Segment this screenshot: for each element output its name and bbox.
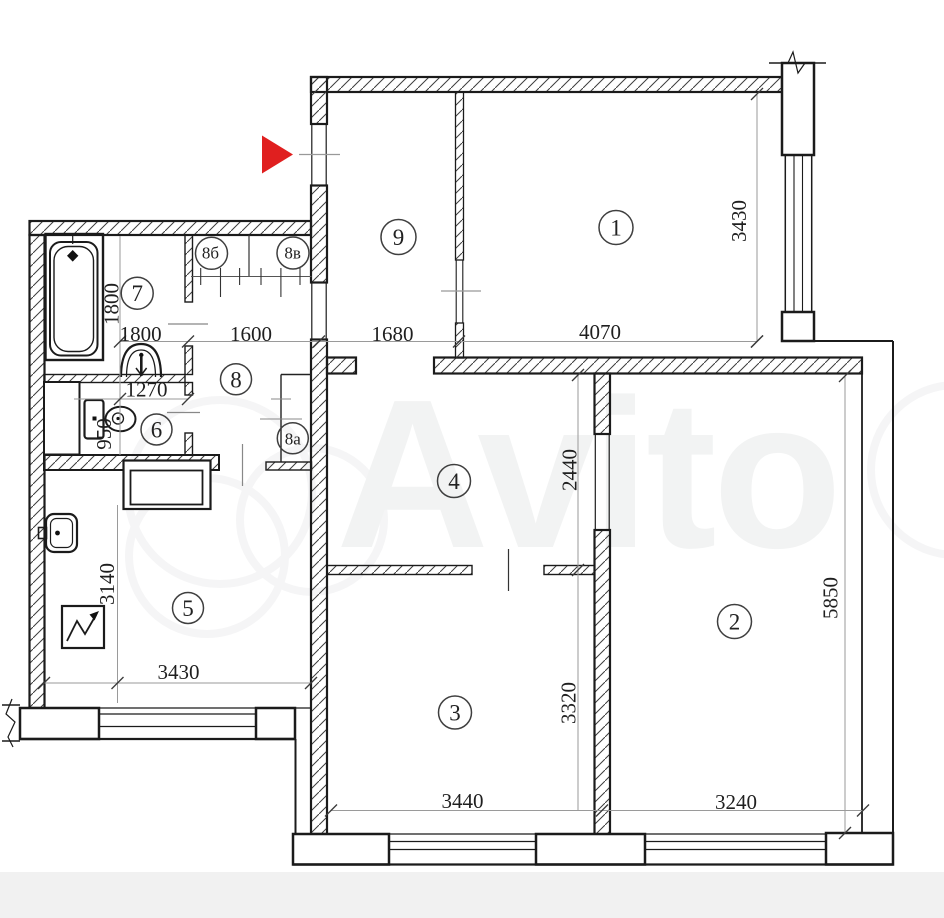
svg-text:950: 950 bbox=[92, 418, 116, 450]
svg-text:3440: 3440 bbox=[442, 789, 484, 813]
svg-text:5: 5 bbox=[182, 596, 194, 621]
svg-text:1270: 1270 bbox=[126, 378, 168, 402]
svg-text:8в: 8в bbox=[284, 244, 301, 263]
svg-text:3: 3 bbox=[449, 701, 461, 726]
svg-text:9: 9 bbox=[393, 225, 405, 250]
svg-text:4: 4 bbox=[448, 469, 460, 494]
svg-text:6: 6 bbox=[151, 418, 163, 443]
svg-text:7: 7 bbox=[131, 281, 143, 306]
svg-text:1: 1 bbox=[610, 216, 622, 241]
svg-text:2440: 2440 bbox=[558, 449, 582, 491]
svg-text:3140: 3140 bbox=[95, 563, 119, 605]
svg-text:3430: 3430 bbox=[727, 200, 751, 242]
svg-text:Avito: Avito bbox=[336, 355, 838, 592]
svg-text:2: 2 bbox=[729, 610, 741, 635]
svg-text:1600: 1600 bbox=[230, 322, 272, 346]
svg-text:1800: 1800 bbox=[100, 283, 124, 325]
svg-text:1800: 1800 bbox=[120, 322, 162, 346]
svg-text:8: 8 bbox=[230, 367, 242, 392]
svg-text:5850: 5850 bbox=[819, 577, 843, 619]
svg-text:3240: 3240 bbox=[715, 790, 757, 814]
svg-text:4070: 4070 bbox=[579, 320, 621, 344]
svg-text:3320: 3320 bbox=[557, 682, 581, 724]
svg-text:8б: 8б bbox=[202, 244, 219, 263]
svg-text:3430: 3430 bbox=[158, 660, 200, 684]
svg-text:8а: 8а bbox=[285, 429, 302, 448]
svg-text:1680: 1680 bbox=[372, 322, 414, 346]
